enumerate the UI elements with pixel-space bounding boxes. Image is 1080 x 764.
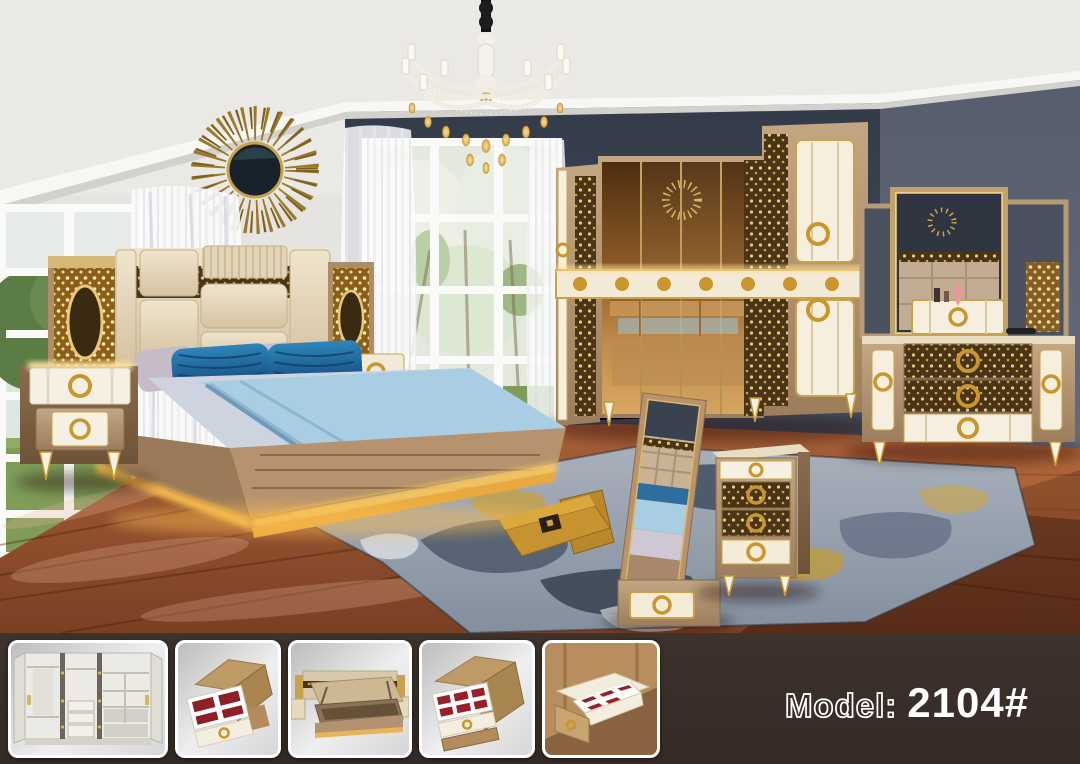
bed-base: [95, 428, 566, 538]
thumbnail-bed-lift-storage[interactable]: [288, 640, 412, 758]
dresser-with-mirror: [845, 190, 1080, 466]
bedroom-photo: [0, 0, 1080, 633]
drawer-top-view-image: [545, 643, 657, 755]
thumbnail-wardrobe-interior[interactable]: [8, 640, 168, 758]
chest-open-drawer-image: [422, 643, 532, 755]
thumbnail-drawer-top-view[interactable]: [542, 640, 660, 758]
nightstand-open-drawer-image: [178, 643, 278, 755]
wardrobe-interior-image: [11, 643, 165, 755]
product-photo-card: Model: 2104#: [0, 0, 1080, 764]
model-caption-value: 2104#: [907, 679, 1029, 727]
thumbnail-chest-open-drawer[interactable]: [419, 640, 535, 758]
bed-lift-storage-image: [291, 643, 409, 755]
detail-thumbnail-strip: Model: 2104#: [0, 633, 1080, 764]
wardrobe: [542, 122, 882, 442]
model-caption-label: Model:: [785, 687, 897, 725]
model-caption: Model: 2104#: [742, 679, 1072, 727]
thumbnail-nightstand-open-drawer[interactable]: [175, 640, 281, 758]
